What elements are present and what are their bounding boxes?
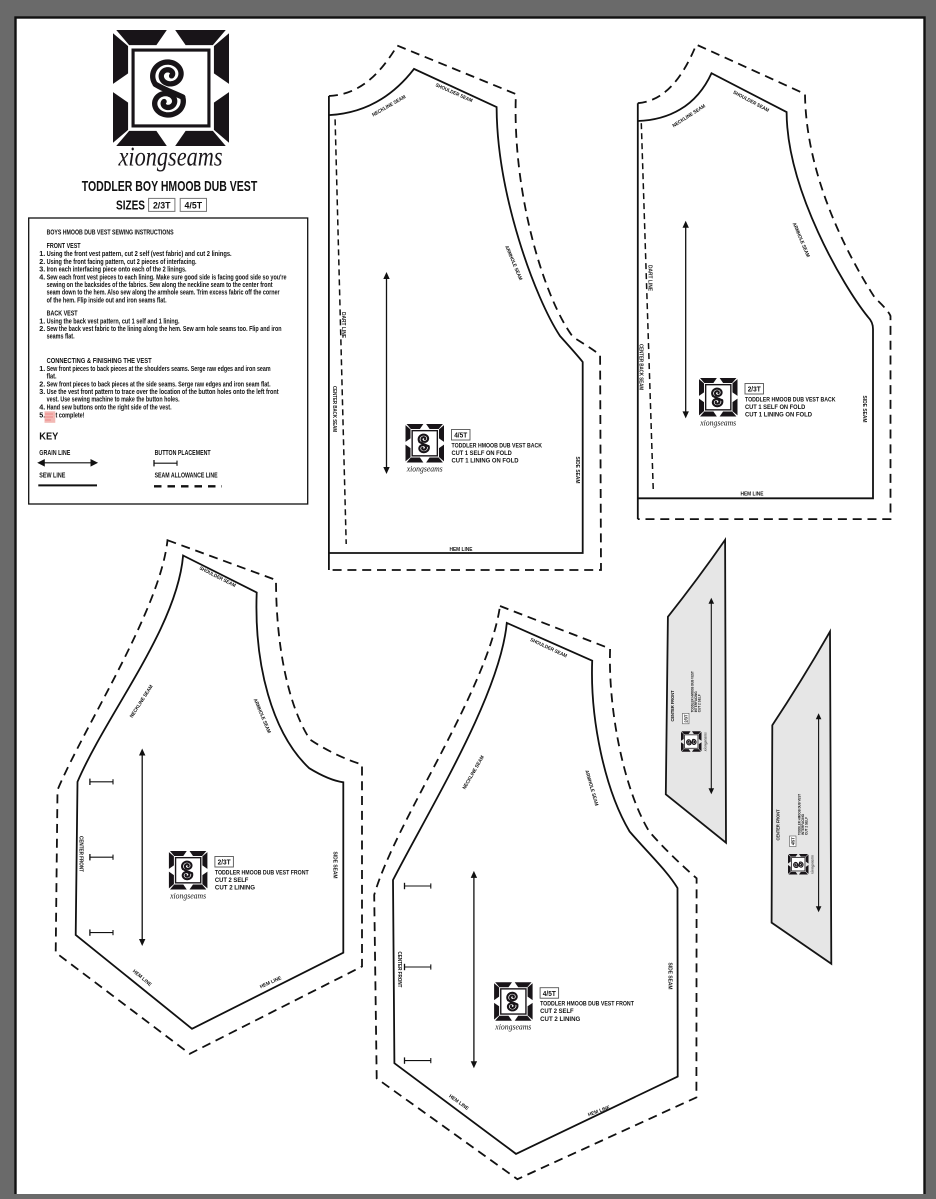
- svg-text:CUT 1 SELF ON FOLD: CUT 1 SELF ON FOLD: [452, 450, 513, 457]
- svg-text:xiongseams: xiongseams: [703, 732, 708, 752]
- svg-text:DART LINE: DART LINE: [340, 312, 346, 339]
- svg-text:seams flat.: seams flat.: [47, 332, 75, 341]
- svg-text:SIZES: SIZES: [116, 198, 145, 213]
- svg-text:HEM LINE: HEM LINE: [450, 547, 474, 553]
- svg-text:CUT 2 LINING: CUT 2 LINING: [215, 885, 255, 892]
- svg-text:HEM LINE: HEM LINE: [741, 492, 765, 498]
- svg-text:2/3T: 2/3T: [153, 201, 171, 212]
- svg-text:t complete!: t complete!: [56, 410, 85, 419]
- svg-text:2/3T: 2/3T: [218, 858, 232, 867]
- svg-text:GRAIN LINE: GRAIN LINE: [39, 448, 70, 457]
- svg-text:CENTER FRONT: CENTER FRONT: [396, 952, 402, 988]
- svg-text:3.: 3.: [39, 387, 45, 396]
- svg-text:CUT 1 LINING ON FOLD: CUT 1 LINING ON FOLD: [452, 458, 519, 465]
- svg-text:BOYS HMOOB DUB VEST SEWING INS: BOYS HMOOB DUB VEST SEWING INSTRUCTIONS: [47, 228, 174, 237]
- svg-text:CENTER BACK SEAM: CENTER BACK SEAM: [638, 344, 644, 390]
- svg-text:xiongseams: xiongseams: [699, 419, 736, 428]
- svg-text:CUT 2 SELF: CUT 2 SELF: [540, 1008, 574, 1015]
- svg-text:SIDE SEAM: SIDE SEAM: [861, 396, 867, 423]
- svg-text:CUT 2 LINING: CUT 2 LINING: [540, 1016, 580, 1023]
- svg-text:4/5T: 4/5T: [791, 837, 796, 845]
- svg-text:TODDLER HMOOB DUB VEST FRONT: TODDLER HMOOB DUB VEST FRONT: [215, 869, 309, 876]
- svg-text:xiongseams: xiongseams: [118, 142, 223, 172]
- svg-text:xiongseams: xiongseams: [169, 892, 206, 901]
- svg-text:BUTTON PLACEMENT: BUTTON PLACEMENT: [155, 448, 211, 457]
- svg-text:DART LINE: DART LINE: [647, 265, 653, 292]
- svg-text:Sew front pieces to back piece: Sew front pieces to back pieces at the s…: [47, 364, 271, 373]
- svg-text:CENTER FRONT: CENTER FRONT: [776, 809, 781, 840]
- svg-text:4/5T: 4/5T: [543, 989, 557, 998]
- svg-text:4/5T: 4/5T: [185, 201, 203, 212]
- svg-text:KEY: KEY: [39, 432, 58, 443]
- svg-text:TODDLER BOY HMOOB DUB VEST: TODDLER BOY HMOOB DUB VEST: [82, 179, 258, 195]
- svg-text:TODDLER HMOOB DUB VEST BACK: TODDLER HMOOB DUB VEST BACK: [452, 442, 543, 449]
- svg-text:1.: 1.: [39, 364, 45, 373]
- svg-text:SIDE SEAM: SIDE SEAM: [331, 852, 337, 879]
- svg-text:CENTER BACK SEAM: CENTER BACK SEAM: [331, 386, 337, 432]
- svg-text:2.: 2.: [39, 324, 45, 333]
- svg-text:2/3T: 2/3T: [748, 385, 762, 394]
- svg-text:4/5T: 4/5T: [454, 431, 468, 440]
- svg-text:xiongseams: xiongseams: [810, 855, 815, 875]
- svg-text:SIDE SEAM: SIDE SEAM: [574, 457, 580, 484]
- svg-text:CENTER FRONT: CENTER FRONT: [78, 836, 84, 872]
- svg-text:of the hem. Flip inside out an: of the hem. Flip inside out and iron sea…: [47, 295, 167, 304]
- svg-text:5.: 5.: [39, 410, 45, 419]
- svg-text:CUT 2 SELF: CUT 2 SELF: [804, 816, 809, 835]
- svg-text:2/3T: 2/3T: [684, 714, 689, 722]
- svg-text:xiongseams: xiongseams: [406, 465, 443, 474]
- svg-text:TODDLER HMOOB DUB VEST FRONT: TODDLER HMOOB DUB VEST FRONT: [540, 1001, 634, 1008]
- svg-text:xiongseams: xiongseams: [494, 1023, 531, 1032]
- svg-text:TODDLER HMOOB DUB VEST BACK: TODDLER HMOOB DUB VEST BACK: [745, 396, 836, 403]
- svg-text:CENTER FRONT: CENTER FRONT: [670, 690, 675, 721]
- svg-text:SEAM ALLOWANCE LINE: SEAM ALLOWANCE LINE: [155, 471, 218, 480]
- svg-text:SIDE SEAM: SIDE SEAM: [667, 963, 673, 990]
- svg-text:CUT 1 SELF ON FOLD: CUT 1 SELF ON FOLD: [745, 404, 806, 411]
- svg-text:4.: 4.: [39, 272, 45, 281]
- svg-text:CUT 2 SELF: CUT 2 SELF: [215, 877, 249, 884]
- svg-text:CUT 2 SELF: CUT 2 SELF: [697, 694, 702, 713]
- svg-text:SEW LINE: SEW LINE: [39, 471, 65, 480]
- svg-text:CUT 1 LINING ON FOLD: CUT 1 LINING ON FOLD: [745, 412, 812, 419]
- svg-text:Sew the back vest fabric to th: Sew the back vest fabric to the lining a…: [47, 324, 282, 333]
